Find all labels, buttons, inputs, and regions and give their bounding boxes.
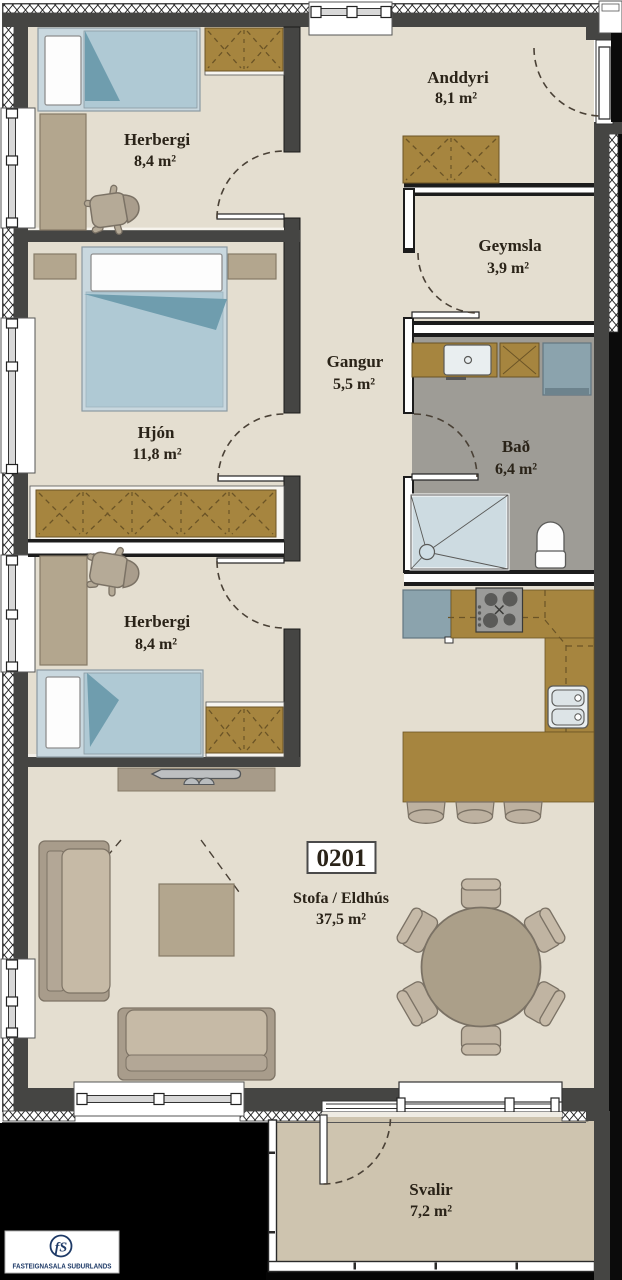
- svg-text:8,1 m²: 8,1 m²: [435, 90, 477, 107]
- svg-text:Herbergi: Herbergi: [124, 130, 190, 149]
- svg-text:Stofa / Eldhús: Stofa / Eldhús: [293, 890, 389, 907]
- svg-text:Svalir: Svalir: [409, 1180, 453, 1199]
- svg-text:fS: fS: [55, 1241, 68, 1256]
- svg-text:37,5 m²: 37,5 m²: [316, 911, 366, 928]
- svg-text:Geymsla: Geymsla: [478, 236, 542, 255]
- svg-text:11,8 m²: 11,8 m²: [132, 446, 181, 463]
- svg-text:8,4 m²: 8,4 m²: [134, 153, 176, 170]
- svg-text:7,2 m²: 7,2 m²: [410, 1203, 452, 1220]
- svg-text:Gangur: Gangur: [327, 352, 384, 371]
- svg-text:Bað: Bað: [502, 437, 530, 456]
- svg-text:Anddyri: Anddyri: [427, 68, 489, 87]
- svg-text:8,4 m²: 8,4 m²: [135, 636, 177, 653]
- svg-text:FASTEIGNASALA SUÐURLANDS: FASTEIGNASALA SUÐURLANDS: [13, 1262, 112, 1271]
- svg-text:Herbergi: Herbergi: [124, 612, 190, 631]
- svg-text:6,4 m²: 6,4 m²: [495, 461, 537, 478]
- svg-text:Hjón: Hjón: [138, 423, 175, 442]
- svg-text:0201: 0201: [317, 845, 367, 872]
- svg-text:5,5 m²: 5,5 m²: [333, 376, 375, 393]
- svg-text:3,9 m²: 3,9 m²: [487, 260, 529, 277]
